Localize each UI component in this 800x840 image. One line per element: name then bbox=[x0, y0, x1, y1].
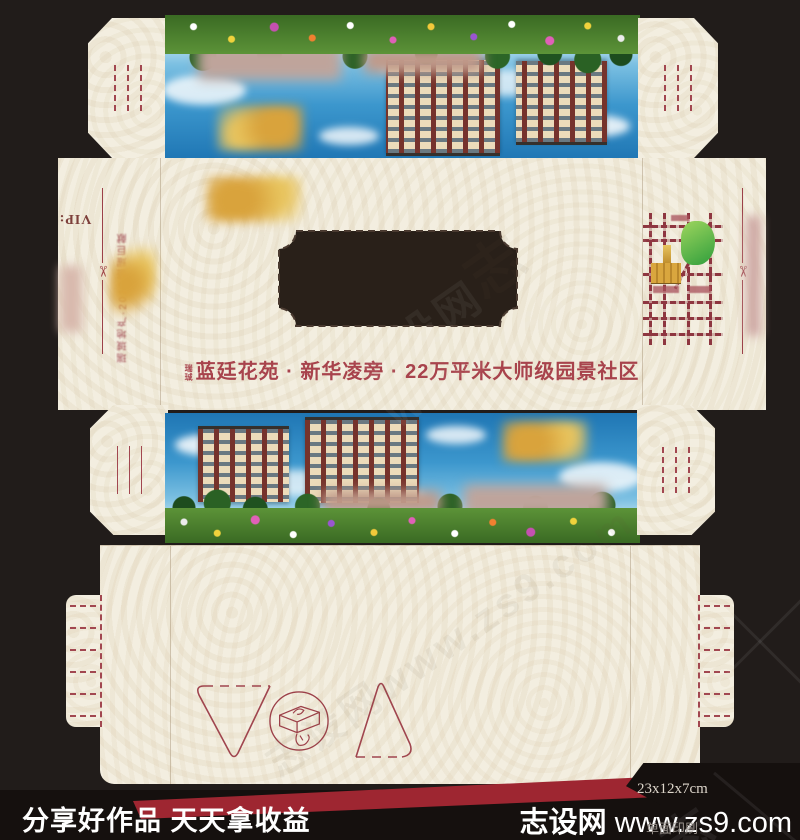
print-spec-label: 单面印刷 bbox=[646, 818, 698, 837]
box-size-label: 23x12x7cm bbox=[637, 781, 708, 798]
tissue-box-dieline-preview: VIP: ✂ 瑞珹地产·2013盛耀巨献 志 瑞 珹 蓝廷花苑 · 新华凌旁 ·… bbox=[0, 0, 800, 840]
footer-slogan: 分享好作品 天天拿收益 bbox=[22, 799, 311, 838]
site-name: 志设网 bbox=[520, 807, 607, 839]
site-url: www.zs9.com bbox=[615, 807, 792, 839]
footer-red-band bbox=[0, 0, 800, 840]
